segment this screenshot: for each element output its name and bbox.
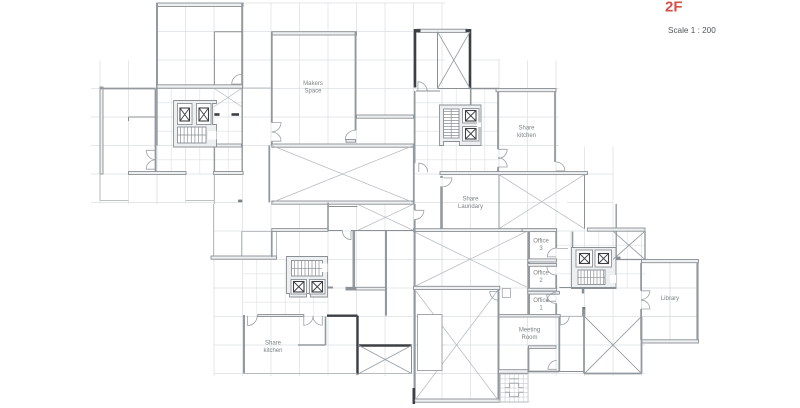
svg-text:ShareLaundary: ShareLaundary	[458, 197, 483, 210]
svg-text:Office3: Office3	[533, 239, 549, 252]
svg-text:MeetingRoom: MeetingRoom	[519, 328, 540, 341]
svg-text:Office2: Office2	[533, 271, 549, 284]
svg-text:2F: 2F	[665, 0, 683, 16]
svg-text:Library: Library	[661, 296, 679, 302]
svg-text:Sharekitchen: Sharekitchen	[517, 126, 536, 139]
svg-text:MakersSpace: MakersSpace	[303, 81, 323, 94]
svg-text:Scale 1 : 200: Scale 1 : 200	[668, 26, 716, 35]
svg-text:Sharekitchen: Sharekitchen	[263, 341, 282, 354]
